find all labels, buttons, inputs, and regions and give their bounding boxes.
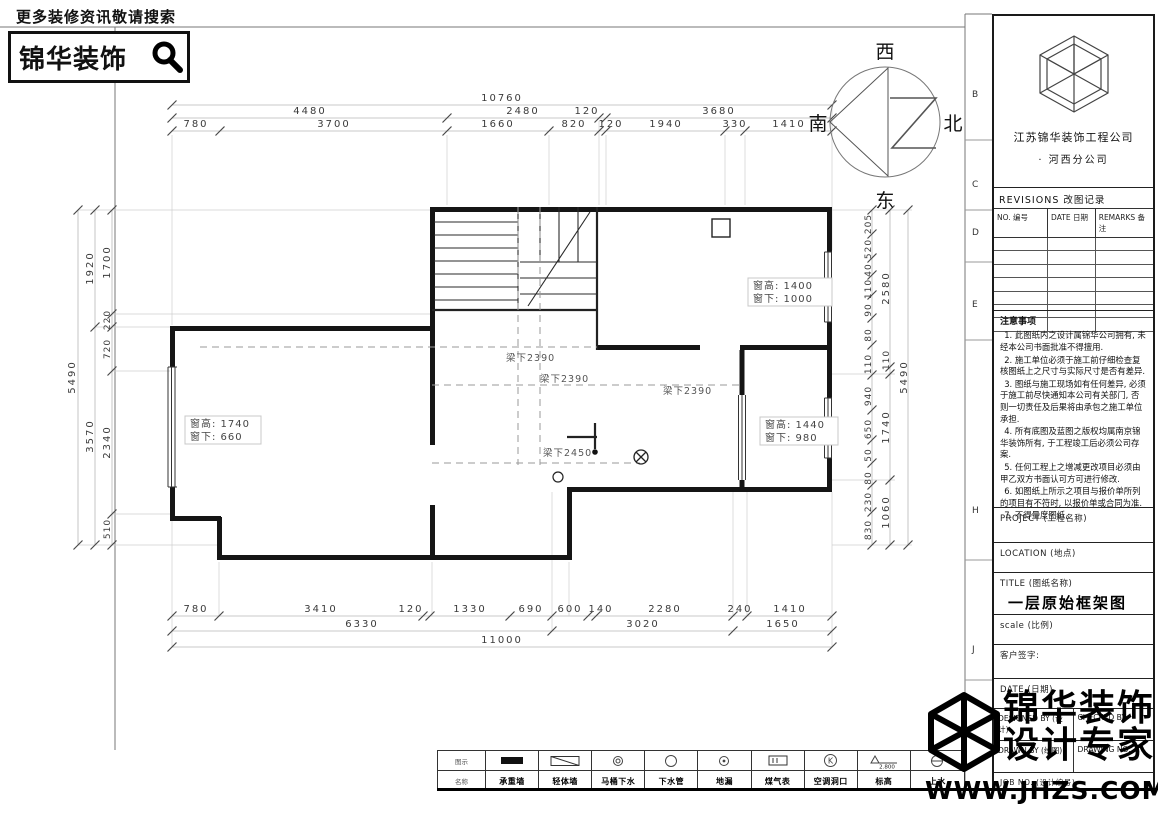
- dim-label: 1410: [772, 119, 805, 130]
- extension-lines: [78, 108, 912, 647]
- dim-label: 2480: [506, 106, 539, 117]
- legend-table: 图示 K 2.800 名称 承重墙 轻体墙 马桶下水 下水管 地漏: [437, 750, 965, 790]
- dim-label: 4480: [293, 106, 326, 117]
- title-block: 江苏锦华装饰工程公司 · 河西分公司 REVISIONS 改图记录 NO. 编号…: [992, 14, 1155, 790]
- light-wall-symbol: [539, 751, 592, 771]
- notes-section: 注意事项 1. 此图纸内之设计属锦华公司拥有, 未经本公司书面批准不得擅用. 2…: [994, 310, 1153, 507]
- dim-label: 1700: [102, 245, 113, 278]
- dim-label: 830: [864, 520, 874, 540]
- project-label: PROJECT (工程名称): [1000, 514, 1087, 524]
- dim-label: 40: [864, 263, 874, 276]
- dim-label: 1920: [85, 251, 96, 284]
- drain-symbol: [553, 472, 563, 482]
- dim-label: 120: [398, 604, 423, 615]
- dim-label: 1410: [773, 604, 806, 615]
- svg-text:K: K: [828, 756, 834, 765]
- dim-label: 520: [864, 239, 874, 259]
- revisions-empty-row: [994, 265, 1153, 278]
- sheet-frame: [0, 14, 992, 790]
- dim-label: 80: [864, 328, 874, 341]
- ac-opening-symbol: K: [805, 751, 858, 771]
- window-label-bottom-right: 窗高: 1440 窗下: 980: [760, 417, 838, 445]
- dim-label: 230: [864, 492, 874, 512]
- note-item: 6. 如图纸上所示之项目与报价单所列的项目有不符时, 以报价单或合同为准.: [1000, 486, 1147, 509]
- watermark-cube-logo: [925, 690, 1003, 774]
- drawing-sheet: 10760 4480 2480 120 3680 780 3700 1660 8…: [0, 0, 1158, 818]
- window-sill-label: 窗下: 980: [765, 431, 818, 444]
- dim-label: 120: [574, 106, 599, 117]
- dim-label: 220: [103, 310, 113, 330]
- solid-wall-symbol: [486, 751, 539, 771]
- notes-title: 注意事项: [1000, 316, 1147, 328]
- revisions-col-date: DATE 日期: [1048, 209, 1096, 237]
- revisions-empty-row: [994, 278, 1153, 291]
- window-height-label: 窗高: 1740: [190, 417, 250, 430]
- company-name: 江苏锦华装饰工程公司: [994, 129, 1153, 145]
- stairs: [434, 207, 597, 310]
- company-branch: · 河西分公司: [994, 151, 1153, 166]
- watermark-line2: 设计专家: [1003, 727, 1155, 764]
- dim-label: 5490: [67, 360, 78, 393]
- grid-letter: C: [972, 180, 978, 190]
- dim-label: 2340: [102, 425, 113, 458]
- dim-label: 1060: [881, 495, 892, 528]
- grid-letter: J: [972, 645, 975, 655]
- watermark-line1: 锦华装饰: [1003, 690, 1155, 727]
- dim-label: 120: [598, 119, 623, 130]
- dim-label: 690: [518, 604, 543, 615]
- window-sill-label: 窗下: 660: [190, 430, 243, 443]
- dim-label: 1740: [881, 410, 892, 443]
- dim-label: 1660: [481, 119, 514, 130]
- window-height-label: 窗高: 1400: [753, 279, 813, 292]
- pipe-dot-symbol: [592, 449, 598, 455]
- brand-search-box: 锦华装饰: [8, 31, 190, 83]
- search-icon: [147, 37, 187, 77]
- grid-letter: D: [972, 228, 979, 238]
- dim-label: 5490: [899, 360, 910, 393]
- client-sign-field: 客户签字:: [994, 644, 1153, 678]
- compass-south-label: 南: [808, 113, 827, 135]
- flue-box: [712, 219, 730, 237]
- grid-letter: B: [972, 90, 978, 100]
- dim-label: 205: [864, 214, 874, 234]
- revisions-title: REVISIONS 改图记录: [994, 188, 1153, 209]
- dim-label: 510: [103, 519, 113, 539]
- note-item: 2. 施工单位必须于施工前仔细检查复核图纸上之尺寸与实际尺寸是否有差异.: [1000, 355, 1147, 378]
- floor-drain-symbol: [634, 450, 648, 464]
- beam-label: 梁下2390: [663, 385, 712, 397]
- location-field: LOCATION (地点): [994, 542, 1153, 572]
- elevation-value: 2.800: [879, 764, 895, 769]
- scale-label: scale (比例): [1000, 621, 1053, 631]
- dim-label: 330: [722, 119, 747, 130]
- dim-label: 11000: [481, 635, 523, 646]
- note-item: 4. 所有底图及蓝图之版权均属南京锦华装饰所有, 于工程竣工后必须公司存案.: [1000, 426, 1147, 461]
- compass-west-label: 西: [875, 41, 894, 63]
- revisions-col-no: NO. 编号: [994, 209, 1048, 237]
- window-label-top-right: 窗高: 1400 窗下: 1000: [748, 278, 832, 306]
- dim-label: 3570: [85, 419, 96, 452]
- dim-label: 80: [864, 471, 874, 484]
- dim-label: 2580: [881, 271, 892, 304]
- dim-label: 3020: [626, 619, 659, 630]
- grid-letter: H: [972, 506, 979, 516]
- compass: 西 北 东 南: [808, 41, 962, 212]
- window-label-left: 窗高: 1740 窗下: 660: [185, 416, 261, 444]
- revisions-empty-row: [994, 251, 1153, 264]
- revisions-empty-row: [994, 238, 1153, 251]
- dim-label: 3700: [317, 119, 350, 130]
- dim-label: 3680: [702, 106, 735, 117]
- window-height-label: 窗高: 1440: [765, 418, 825, 431]
- dim-label: 820: [561, 119, 586, 130]
- dim-label: 90: [864, 303, 874, 316]
- dim-label: 2280: [648, 604, 681, 615]
- dim-label: 3410: [304, 604, 337, 615]
- dim-label: 50: [864, 448, 874, 461]
- dim-label: 1330: [453, 604, 486, 615]
- watermark-url: WWW.JHZS.COM: [925, 776, 1158, 805]
- dim-label: 780: [183, 119, 208, 130]
- dim-label: 650: [864, 419, 874, 439]
- legend-symbol-row-label: 图示: [438, 751, 486, 771]
- dim-label: 110: [882, 350, 892, 370]
- grid-letter: E: [972, 300, 978, 310]
- dashed-lines: [200, 207, 740, 465]
- dim-label: 240: [727, 604, 752, 615]
- watermark: 锦华装饰 设计专家 WWW.JHZS.COM: [925, 690, 1158, 805]
- compass-n-glyph: [890, 98, 936, 148]
- client-sign-label: 客户签字:: [1000, 651, 1039, 661]
- revisions-col-remarks: REMARKS 备注: [1096, 209, 1153, 237]
- title-field: TITLE (图纸名称) 一层原始框架图: [994, 572, 1153, 614]
- beam-label: 梁下2450: [543, 447, 592, 459]
- dimension-lines: [78, 105, 908, 647]
- title-label: TITLE (图纸名称): [1000, 579, 1072, 589]
- window-sill-label: 窗下: 1000: [753, 292, 813, 305]
- dim-label: 1650: [766, 619, 799, 630]
- gas-meter-symbol: [752, 751, 805, 771]
- dim-label: 600: [557, 604, 582, 615]
- dim-label: 940: [864, 386, 874, 406]
- elevation-symbol: 2.800: [858, 751, 911, 771]
- floor-drain-legend-symbol: [698, 751, 751, 771]
- beam-label: 梁下2390: [540, 373, 589, 385]
- note-item: 5. 任何工程上之增减更改项目必须由甲乙双方书面认可方可进行修改.: [1000, 462, 1147, 485]
- compass-east-label: 东: [875, 190, 894, 212]
- location-label: LOCATION (地点): [1000, 549, 1076, 559]
- dim-label: 780: [183, 604, 208, 615]
- toilet-drain-symbol: [592, 751, 645, 771]
- project-field: PROJECT (工程名称): [994, 507, 1153, 542]
- revisions-empty-row: [994, 292, 1153, 305]
- scale-field: scale (比例): [994, 614, 1153, 644]
- dim-label: 1940: [649, 119, 682, 130]
- company-logo-section: 江苏锦华装饰工程公司 · 河西分公司: [994, 16, 1153, 187]
- compass-arrow: [830, 68, 888, 176]
- brand-name: 锦华装饰: [11, 39, 147, 76]
- promo-tagline: 更多装修资讯敬请搜索: [16, 6, 176, 27]
- revisions-header-row: NO. 编号 DATE 日期 REMARKS 备注: [994, 209, 1153, 238]
- compass-north-label: 北: [943, 113, 962, 135]
- note-item: 3. 图纸与施工现场如有任何差异, 必须于施工前尽快通知本公司有关部门, 否则一…: [1000, 379, 1147, 425]
- dim-label: 140: [588, 604, 613, 615]
- beam-label: 梁下2390: [506, 352, 555, 364]
- company-cube-logo: [1029, 30, 1119, 122]
- dim-label: 6330: [345, 619, 378, 630]
- dim-label: 110: [864, 279, 874, 299]
- drawing-title: 一层原始框架图: [1008, 592, 1147, 613]
- note-item: 1. 此图纸内之设计属锦华公司拥有, 未经本公司书面批准不得擅用.: [1000, 330, 1147, 353]
- dim-label: 110: [864, 354, 874, 374]
- plan-walls-thin: [432, 207, 597, 449]
- drain-pipe-symbol: [645, 751, 698, 771]
- revisions-section: REVISIONS 改图记录 NO. 编号 DATE 日期 REMARKS 备注: [994, 187, 1153, 310]
- dim-label: 10760: [481, 93, 523, 104]
- dimension-ticks: [74, 101, 913, 652]
- dim-label: 720: [103, 339, 113, 359]
